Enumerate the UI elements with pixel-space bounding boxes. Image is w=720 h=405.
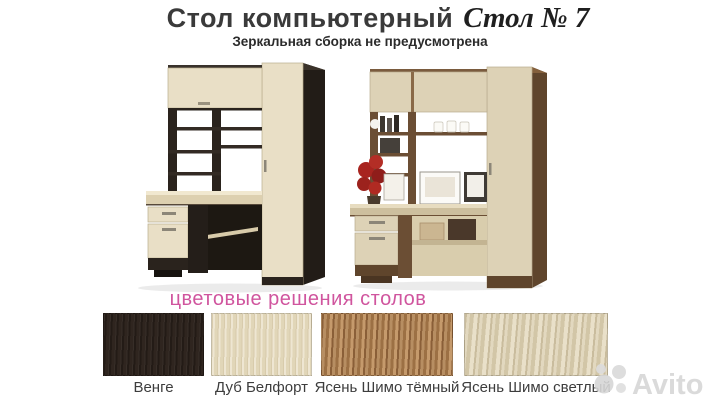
avito-logo-circle [596, 364, 606, 374]
product-image: Стол компьютерныйСтол № 7 Зеркальная сбо… [0, 0, 720, 405]
title-main: Стол компьютерный [167, 3, 454, 33]
avito-logo-circle [595, 375, 614, 394]
avito-watermark-text: Avito [632, 369, 703, 401]
desk-photo-ash-variant [348, 58, 552, 292]
swatch-ash-shimo-light: Ясень Шимо светлый [464, 313, 608, 376]
color-options-heading: цветовые решения столов [168, 288, 428, 311]
avito-logo-circle [612, 365, 626, 379]
title-model-number: Стол № 7 [463, 2, 589, 34]
swatch-wenge-label: Венге [133, 379, 173, 396]
swatch-oak-belfort-sample [211, 313, 312, 376]
swatch-ash-shimo-dark-sample [321, 313, 453, 376]
swatch-wenge-sample [103, 313, 204, 376]
swatch-wenge: Венге [103, 313, 204, 376]
avito-watermark: Avito [588, 356, 718, 402]
assembly-note: Зеркальная сборка не предусмотрена [0, 34, 720, 49]
swatch-oak-belfort-label: Дуб Белфорт [215, 379, 308, 396]
swatch-ash-shimo-light-sample [464, 313, 608, 376]
swatch-oak-belfort: Дуб Белфорт [211, 313, 312, 376]
desk-photo-wenge-variant [130, 55, 330, 295]
avito-logo-circle [616, 383, 626, 393]
swatch-ash-shimo-dark: Ясень Шимо тёмный [321, 313, 453, 376]
page-title: Стол компьютерныйСтол № 7 [0, 2, 720, 35]
swatch-ash-shimo-dark-label: Ясень Шимо тёмный [315, 379, 460, 396]
